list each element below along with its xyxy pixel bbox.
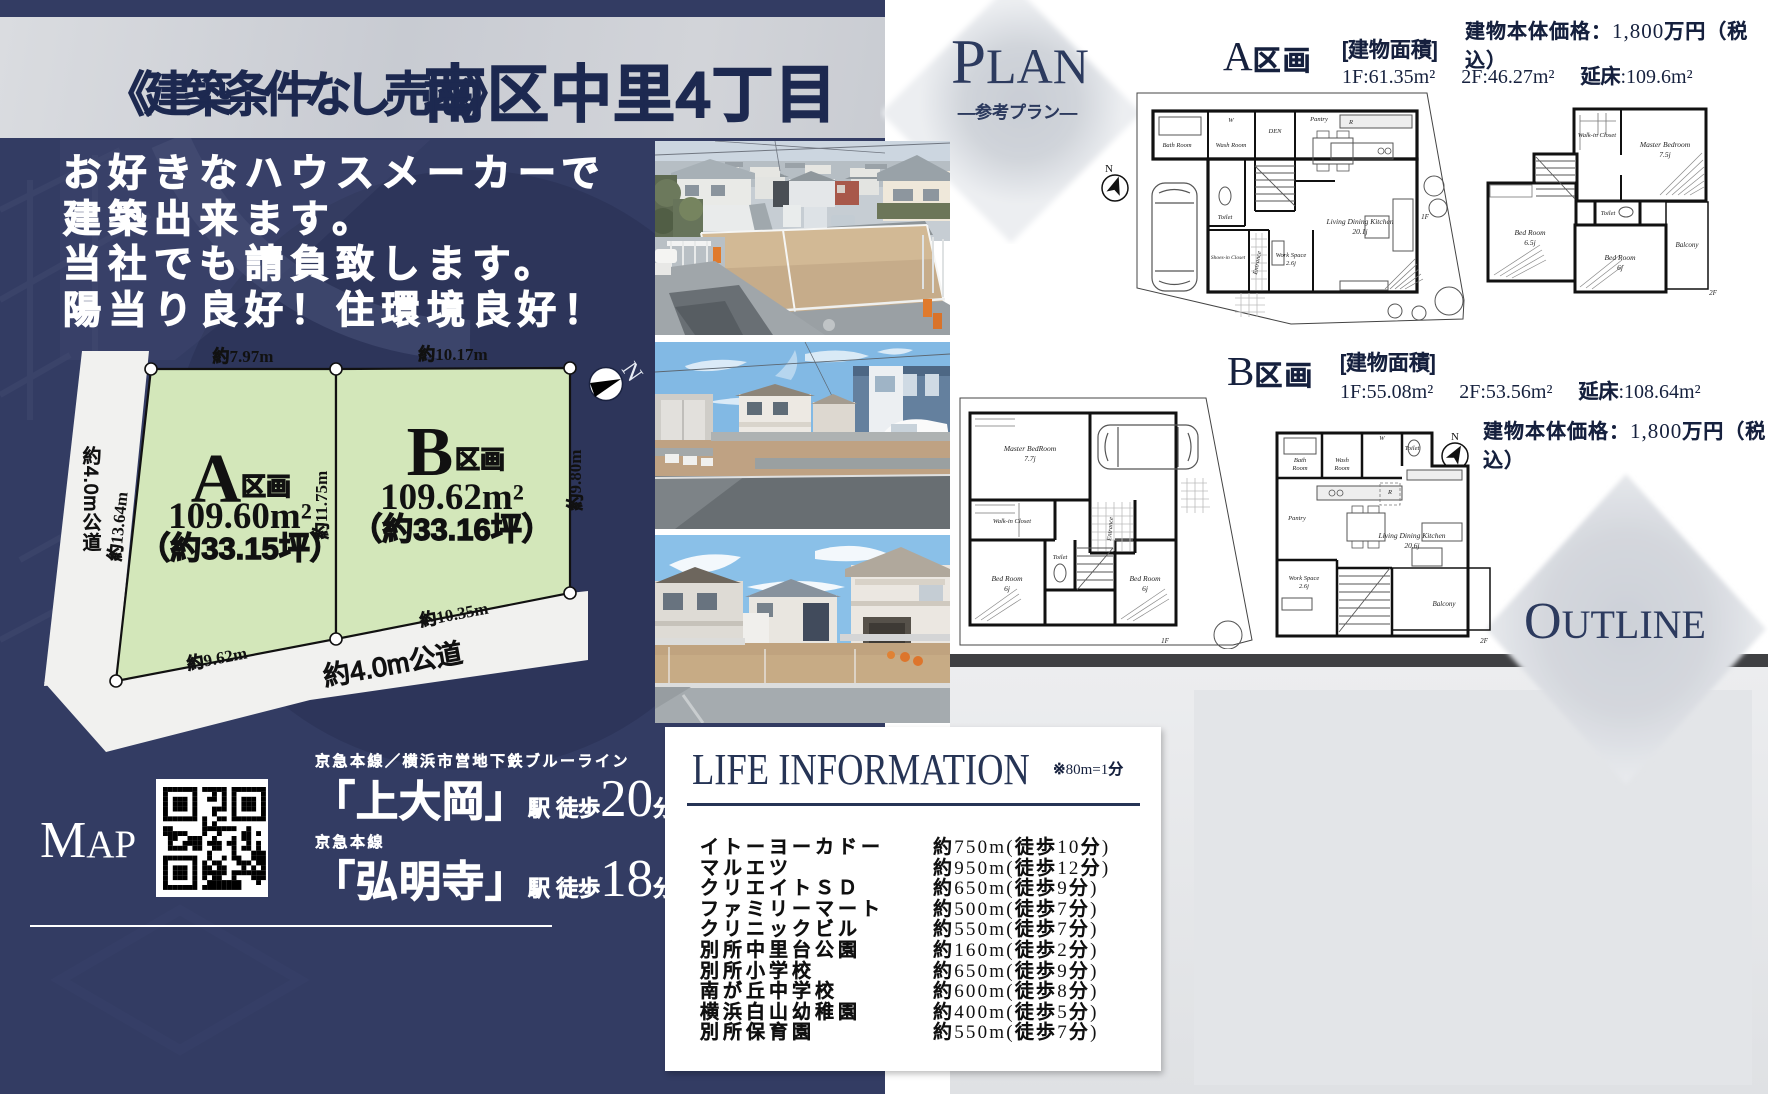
svg-text:2.6j: 2.6j	[1286, 260, 1296, 267]
svg-text:約9.80m: 約9.80m	[565, 450, 585, 511]
svg-text:Balcony: Balcony	[1676, 241, 1700, 249]
svg-text:（約33.16坪）: （約33.16坪）	[351, 512, 553, 547]
svg-text:Work Space: Work Space	[1289, 575, 1320, 582]
svg-text:約7.97m: 約7.97m	[213, 346, 274, 366]
svg-text:Bed Room: Bed Room	[1514, 228, 1546, 237]
svg-text:N: N	[1105, 163, 1113, 175]
svg-text:約4.0m公道: 約4.0m公道	[80, 446, 102, 553]
svg-text:Room: Room	[1291, 465, 1307, 472]
svg-text:Toilet: Toilet	[1218, 214, 1233, 221]
svg-text:約10.17m: 約10.17m	[418, 344, 487, 364]
svg-text:6j: 6j	[1617, 263, 1623, 272]
svg-text:Bath: Bath	[1294, 457, 1306, 464]
svg-text:20.6j: 20.6j	[1404, 541, 1419, 550]
svg-text:Room: Room	[1333, 465, 1349, 472]
svg-text:（約33.15坪）: （約33.15坪）	[139, 531, 341, 566]
svg-text:7.5j: 7.5j	[1659, 150, 1670, 159]
svg-text:2F: 2F	[1480, 637, 1489, 645]
svg-text:Master BedRoom: Master BedRoom	[1003, 444, 1057, 453]
svg-text:Walk-in Closet: Walk-in Closet	[993, 518, 1031, 525]
svg-text:2F: 2F	[1709, 289, 1718, 297]
svg-text:Shoes-in Closet: Shoes-in Closet	[1211, 255, 1246, 261]
svg-text:7.7j: 7.7j	[1024, 454, 1035, 463]
svg-text:Master Bedroom: Master Bedroom	[1639, 140, 1691, 149]
svg-text:Pantry: Pantry	[1287, 515, 1306, 522]
svg-text:1F: 1F	[1161, 637, 1170, 645]
svg-text:約11.75m: 約11.75m	[311, 471, 331, 539]
svg-text:Living Dining Kitchen: Living Dining Kitchen	[1325, 217, 1393, 226]
svg-text:6j: 6j	[1142, 584, 1148, 593]
svg-text:1F: 1F	[1421, 213, 1430, 221]
svg-text:Toilet: Toilet	[1601, 210, 1616, 217]
svg-text:Wash Room: Wash Room	[1216, 142, 1247, 149]
svg-text:Work Space: Work Space	[1276, 252, 1307, 259]
svg-text:Walk-in Closet: Walk-in Closet	[1578, 132, 1616, 139]
svg-text:W: W	[1379, 435, 1385, 442]
svg-text:DEN: DEN	[1268, 128, 1283, 135]
svg-text:区画: 区画	[455, 446, 505, 474]
svg-text:20.1j: 20.1j	[1352, 227, 1367, 236]
svg-text:R: R	[1387, 489, 1392, 496]
svg-text:Toilet: Toilet	[1053, 554, 1068, 561]
svg-text:6j: 6j	[1004, 584, 1010, 593]
svg-text:Wash: Wash	[1335, 457, 1349, 464]
svg-text:Toilet: Toilet	[1405, 445, 1420, 452]
svg-text:6.5j: 6.5j	[1524, 238, 1535, 247]
svg-text:Pantry: Pantry	[1309, 116, 1328, 123]
svg-text:W: W	[1228, 117, 1234, 124]
svg-text:Living Dining Kitchen: Living Dining Kitchen	[1377, 531, 1445, 540]
svg-text:2.6j: 2.6j	[1299, 583, 1309, 590]
svg-text:Balcony: Balcony	[1433, 600, 1457, 608]
svg-text:Bath Room: Bath Room	[1162, 142, 1191, 149]
svg-text:Bed Room: Bed Room	[1604, 253, 1636, 262]
svg-text:Bed Room: Bed Room	[991, 574, 1023, 583]
svg-text:Bed Room: Bed Room	[1129, 574, 1161, 583]
svg-text:R: R	[1348, 119, 1353, 126]
